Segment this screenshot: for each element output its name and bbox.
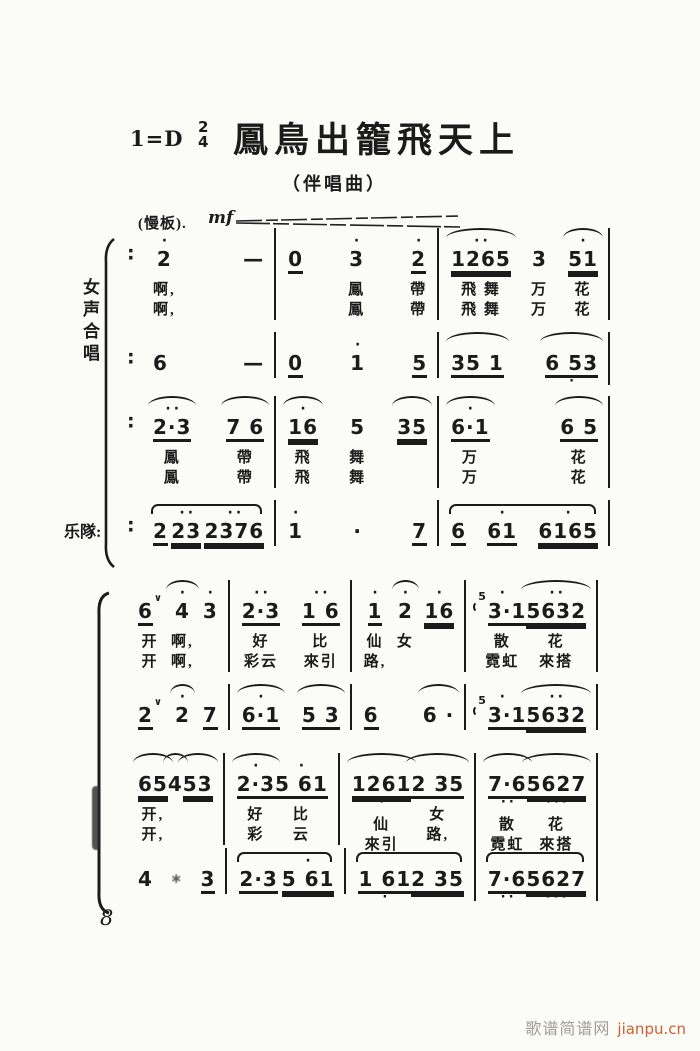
note-number: 2 35 <box>411 867 464 891</box>
note-row: 2·3 <box>237 772 275 796</box>
octave-dots-above <box>315 693 326 703</box>
breath-mark: ∨ <box>154 697 162 708</box>
lyric: 花 <box>575 301 592 320</box>
note-number: 1 <box>350 351 365 375</box>
note-row: 0 <box>288 247 303 271</box>
note-row: 2·3 <box>239 867 277 891</box>
note-row: 53·1 <box>478 703 526 727</box>
note-row: 0 <box>288 351 303 375</box>
note-unit: 4 <box>168 753 183 845</box>
octave-dots-above: · <box>159 237 170 247</box>
octave-dots-above <box>203 857 214 867</box>
music-line: 65开,开, 4 53 ·2·3好彩·5 61比云 1261·仙來引 2 35女… <box>126 753 598 855</box>
note-row: 7 <box>203 703 218 727</box>
octave-dots-below: · <box>566 378 577 385</box>
octave-dots-above: · <box>177 693 188 703</box>
measure: 6·61·6165 <box>439 500 610 546</box>
music-line: 2∨·2 7·6·1 5 3 6 6 ··53·1··5632 <box>126 684 598 730</box>
lyric <box>251 281 257 300</box>
note-number: 2·3 <box>242 599 280 623</box>
note-number: 7 <box>412 519 427 543</box>
note-number: 7 <box>203 703 218 727</box>
note-unit: ·16飛飛 <box>288 396 318 488</box>
note-unit: ··2·3好彩云 <box>242 580 280 672</box>
note-number: 5 <box>412 351 427 375</box>
note-row: 6 <box>364 703 379 727</box>
octave-dots-above: · <box>497 693 508 703</box>
note-unit: ·4啊,啊, <box>171 580 194 672</box>
octave-dots-above: ·· <box>162 405 182 415</box>
note-number: 2 35 <box>411 772 464 796</box>
page-number: 8 <box>100 906 113 930</box>
lyric: 路, <box>426 826 449 845</box>
measure: ··2·3鳳鳳 7 6帶帶 <box>141 396 276 488</box>
lyric: 开, <box>142 806 165 825</box>
lyric: 帶 <box>410 301 427 320</box>
lyric: 万 <box>462 469 479 488</box>
octave-dots-above <box>290 237 301 247</box>
lyric <box>172 806 178 825</box>
note-unit: 6 5花花 <box>560 396 598 488</box>
octave-dots-above <box>205 693 216 703</box>
measure: 65开,开, 4 53 <box>126 753 225 845</box>
note-unit: 3万万 <box>531 228 548 320</box>
note-row: 5632 <box>526 599 586 623</box>
lyric: 鳳 <box>348 301 365 320</box>
time-signature-bottom: 4 <box>198 135 208 150</box>
note-row: 1261 <box>352 772 412 796</box>
note-row: 35 1 <box>451 351 504 375</box>
note-row: 3 <box>349 247 364 271</box>
phrase-arc <box>486 852 584 862</box>
note-number: 3·1 <box>488 703 526 727</box>
note-number: 6 <box>138 599 153 623</box>
octave-dots-above: · <box>577 237 588 247</box>
note-unit: ··1 6比來引 <box>302 580 340 672</box>
repeat-dots: ∶ <box>128 500 141 538</box>
note-row: 2376 <box>204 519 264 543</box>
lyric: 云 <box>293 826 310 845</box>
note-number: 6 <box>451 519 466 543</box>
note-row: 2∨ <box>138 703 162 727</box>
octave-dots-above <box>170 762 181 772</box>
note-row: 65 <box>138 772 168 796</box>
lyric <box>195 806 201 825</box>
octave-dots-below: · <box>376 799 387 806</box>
music-line: 6∨开开·4啊,啊,·3 ··2·3好彩云··1 6比來引·1仙路,·2女 ·1… <box>126 580 598 672</box>
lyric: 來引 <box>304 653 338 672</box>
note-unit: ·51花花 <box>568 228 598 320</box>
note-number: 2·3 <box>237 772 275 796</box>
note-unit: 5 3 <box>302 684 340 727</box>
measure: ·6·1万万 6 5花花 <box>439 396 610 488</box>
lyric: 散 <box>494 633 511 652</box>
note-unit: 5 <box>412 332 427 375</box>
music-line: ∶ 6 — 0·1 5 35 1 6 53· <box>128 332 610 385</box>
note-unit: ·3鳳鳳 <box>348 228 365 320</box>
lyric <box>409 469 415 488</box>
note-row: 5 <box>412 351 427 375</box>
note-number: 1261 <box>352 772 412 796</box>
octave-dots-above: · <box>465 405 476 415</box>
note-unit: — <box>243 228 264 320</box>
lyric <box>207 653 213 672</box>
note-unit: ∗ <box>170 848 183 891</box>
chorus-label: 女声合唱 <box>77 278 102 366</box>
note-unit: 7 <box>203 684 218 727</box>
note-unit: ·2女 <box>397 580 414 672</box>
octave-dots-above: · <box>290 509 301 519</box>
lyric <box>409 449 415 468</box>
note-number: 1 61 <box>358 867 411 891</box>
music-line: ∶··2·3鳳鳳 7 6帶帶·16飛飛 5舞舞 35 ·6·1万万 6 5花花 <box>128 396 610 488</box>
lyric: 好 <box>252 633 269 652</box>
lyric: 舞 <box>349 469 366 488</box>
note-row: 2 35 <box>411 772 464 796</box>
note-number: 1 6 <box>302 599 340 623</box>
note-row: 53 <box>183 772 213 796</box>
note-number: 53 <box>183 772 213 796</box>
note-row: 2 35 <box>411 867 464 891</box>
subtitle: （伴唱曲） <box>282 170 387 196</box>
note-unit: 0 <box>288 228 303 320</box>
time-signature: 2 4 <box>198 120 208 150</box>
note-unit: 6 <box>364 684 379 727</box>
octave-dots-above: ·· <box>546 693 566 703</box>
note-row: 5627 <box>526 867 586 891</box>
lyric: 开 <box>142 653 159 672</box>
note-number: 2 <box>153 519 168 543</box>
octave-dots-above <box>414 341 425 351</box>
note-row: 51 <box>568 247 598 271</box>
note-unit: ··5632花來搭 <box>526 580 586 672</box>
octave-dots-above: ·· <box>311 589 331 599</box>
grace-note: 5 <box>478 694 486 707</box>
note-row: 3 <box>203 599 218 623</box>
octave-dots-above <box>574 405 585 415</box>
measure: 6 — <box>141 332 276 378</box>
lyric: 花 <box>571 469 588 488</box>
octave-dots-above <box>433 693 444 703</box>
note-unit: ·2帶帶 <box>410 228 427 320</box>
note-row: 53·1 <box>478 599 526 623</box>
grace-note: 5 <box>478 590 486 603</box>
note-row: 6 · <box>423 703 454 727</box>
lyric: 飛 <box>295 469 312 488</box>
octave-dots-above <box>240 405 251 415</box>
note-unit: ·2·3好彩 <box>237 753 275 845</box>
note-number: 6 53 <box>545 351 598 375</box>
note-number: 35 <box>397 415 427 439</box>
note-row: 1 61 <box>358 867 411 891</box>
note-unit: ··2·3鳳鳳 <box>153 396 191 488</box>
breath-mark: ∨ <box>154 593 162 604</box>
octave-dots-above <box>432 762 443 772</box>
note-unit: 35 1 <box>451 332 504 375</box>
octave-dots-above <box>566 341 577 351</box>
note-number: 2 <box>138 703 153 727</box>
note-row: 1 <box>288 519 303 543</box>
measure: 2·3·5 61 <box>227 848 346 894</box>
note-row: 6165 <box>538 519 598 543</box>
lyric: 飛 舞 <box>461 281 501 300</box>
measure: 2··23··2376 <box>141 500 276 546</box>
lyric <box>403 653 409 672</box>
lyric <box>207 633 213 652</box>
note-row: 2 <box>157 247 172 271</box>
note-number: 3 <box>349 247 364 271</box>
note-row: 1 <box>368 599 383 623</box>
note-number: — <box>243 247 264 271</box>
lyric: 女 <box>397 633 414 652</box>
octave-dots-below: ·· <box>498 894 517 901</box>
lyric <box>436 633 442 652</box>
octave-dots-above: ·· <box>471 237 491 247</box>
octave-dots-above: · <box>400 589 411 599</box>
octave-dots-above: · <box>205 589 216 599</box>
system2-brace <box>94 590 112 916</box>
note-row: 23 <box>171 519 201 543</box>
repeat-dots: ∶ <box>128 332 141 370</box>
note-row: 6∨ <box>138 599 162 623</box>
measure: 7·6·· 5627··· <box>476 848 598 901</box>
note-number: 2 <box>411 247 426 271</box>
dynamic-marking: mf <box>208 208 233 228</box>
note-number: 7·6 <box>488 867 526 891</box>
note-number: 5627 <box>526 867 586 891</box>
lyric: 万 <box>531 281 548 300</box>
note-number: 6 <box>364 703 379 727</box>
lyric: 霓虹 <box>485 653 519 672</box>
note-row: 2 <box>175 703 190 727</box>
key-signature: 1=D <box>130 126 183 151</box>
measure: ·6·1 5 3 <box>230 684 352 730</box>
note-row: 5632 <box>526 703 586 727</box>
octave-dots-above <box>192 762 203 772</box>
octave-dots-above <box>366 693 377 703</box>
measure: ·1 · 7 <box>276 500 439 546</box>
note-row: 1265 <box>451 247 511 271</box>
note-number: 5627 <box>527 772 587 796</box>
note-number: · <box>353 519 362 543</box>
lyric <box>251 301 257 320</box>
note-row: 6·1 <box>242 703 280 727</box>
note-row: — <box>243 351 264 375</box>
measure: 6 6 · <box>352 684 467 730</box>
note-unit: 2∨ <box>138 684 162 727</box>
note-number: 2 <box>175 703 190 727</box>
octave-dots-below: ·· <box>498 799 517 806</box>
octave-dots-above <box>472 341 483 351</box>
note-unit: ·1仙路, <box>364 580 387 672</box>
note-row: 4 <box>168 772 183 796</box>
octave-dots-above: · <box>369 589 380 599</box>
lyric: 鳳 <box>348 281 365 300</box>
lyric: 帶 <box>237 449 254 468</box>
lyric <box>195 826 201 845</box>
note-unit: ·2 <box>175 684 190 727</box>
note-row: 2·3 <box>153 415 191 439</box>
lyric: 啊, <box>171 653 194 672</box>
note-unit: 5627···花來搭 <box>527 753 587 855</box>
lyric: 好 <box>247 806 264 825</box>
octave-dots-above <box>290 341 301 351</box>
note-number: 16 <box>288 415 318 439</box>
note-unit: ·5 61比云 <box>275 753 328 845</box>
measure: ·2啊,啊, — <box>141 228 276 320</box>
note-number: 5632 <box>526 599 586 623</box>
phrase-arc <box>237 852 332 862</box>
note-unit: 3 <box>201 848 216 891</box>
music-system: 6∨开开·4啊,啊,·3 ··2·3好彩云··1 6比來引·1仙路,·2女 ·1… <box>126 580 598 916</box>
octave-dots-above <box>502 762 513 772</box>
note-number: 2·3 <box>153 415 191 439</box>
lyric <box>172 826 178 845</box>
octave-dots-above <box>551 762 562 772</box>
octave-dots-above: · <box>177 589 188 599</box>
note-row: 3 <box>201 867 216 891</box>
note-row: 35 <box>397 415 427 439</box>
page-title: 鳳鳥出籠飛天上 <box>233 112 520 163</box>
octave-dots-above: · <box>255 693 266 703</box>
octave-dots-above <box>147 762 158 772</box>
watermark-site-name: 歌谱简谱网 <box>525 1021 610 1038</box>
note-unit: ·3 <box>203 580 218 672</box>
note-number: 2·3 <box>239 867 277 891</box>
octave-dots-above: · <box>296 762 307 772</box>
note-number: 7·6 <box>488 772 526 796</box>
note-unit: 5舞舞 <box>349 396 366 488</box>
note-unit: 7·6··散霓虹 <box>488 753 526 855</box>
lyric: 彩云 <box>244 653 278 672</box>
note-row: 7 6 <box>226 415 264 439</box>
note-unit: ·6·1 <box>242 684 280 727</box>
lyric: 花 <box>575 281 592 300</box>
note-row: 7·6 <box>488 772 526 796</box>
watermark: 歌谱简谱网jianpu.cn <box>525 1015 686 1039</box>
note-row: 2 <box>153 519 168 543</box>
measure: ··2·3好彩云··1 6比來引 <box>230 580 352 672</box>
octave-dots-above <box>140 857 151 867</box>
measure: 35 1 6 53· <box>439 332 610 385</box>
octave-dots-above <box>248 341 259 351</box>
octave-dots-above <box>352 405 363 415</box>
note-number: 6·1 <box>242 703 280 727</box>
octave-dots-above <box>414 509 425 519</box>
repeat-dots: ∶ <box>128 396 141 434</box>
note-unit: ··1265飛 舞飛 舞 <box>451 228 511 320</box>
note-row: 6 53 <box>545 351 598 375</box>
octave-dots-above <box>376 762 387 772</box>
octave-dots-above: · <box>434 589 445 599</box>
octave-dots-above: · <box>297 405 308 415</box>
watermark-link[interactable]: jianpu.cn <box>617 1020 686 1038</box>
lyric: 开 <box>142 633 159 652</box>
measure: ·16飛飛 5舞舞 35 <box>276 396 439 488</box>
note-row: 16 <box>424 599 454 623</box>
note-unit: ··5632 <box>526 684 586 727</box>
lyric: 女 <box>429 806 446 825</box>
lyric: 帶 <box>410 281 427 300</box>
lyric: 鳳 <box>164 469 181 488</box>
score-page: 1=D 2 4 鳳鳥出籠飛天上 （伴唱曲） (慢板). mf 女声合唱 乐隊: … <box>0 0 700 1051</box>
note-unit: 53 <box>183 753 213 845</box>
octave-dots-above <box>171 857 182 867</box>
lyric: 飛 舞 <box>461 301 501 320</box>
note-number: — <box>243 351 264 375</box>
note-row: 2·3 <box>242 599 280 623</box>
note-unit: ·6·1万万 <box>451 396 489 488</box>
note-row: 6 <box>153 351 168 375</box>
lyric: 路, <box>364 653 387 672</box>
lyric: 啊, <box>153 301 176 320</box>
note-number: 5 61 <box>275 772 328 796</box>
note-number: 2376 <box>204 519 264 543</box>
ink-smudge <box>92 786 100 850</box>
note-number: 6·1 <box>451 415 489 439</box>
note-unit: 7 <box>412 500 427 543</box>
lyric: 比 <box>312 633 329 652</box>
octave-dots-above: ·· <box>251 589 271 599</box>
note-number: 1265 <box>451 247 511 271</box>
note-unit: — <box>243 332 264 375</box>
note-number: 5 <box>350 415 365 439</box>
measure: 6∨开开·4啊,啊,·3 <box>126 580 230 672</box>
note-number: 6 5 <box>560 415 598 439</box>
lyric: 舞 <box>349 449 366 468</box>
note-row: 6 <box>451 519 466 543</box>
octave-dots-above: · <box>351 237 362 247</box>
note-row: 7 <box>412 519 427 543</box>
note-unit: 6 · <box>423 684 454 727</box>
measure: 2∨·2 7 <box>126 684 230 730</box>
note-row: ∗ <box>170 867 183 891</box>
note-row: 4 <box>175 599 190 623</box>
note-row: 5 61 <box>275 772 328 796</box>
note-row: 2 <box>411 247 426 271</box>
lyric: 散 <box>499 816 516 835</box>
note-number: 1 <box>368 599 383 623</box>
note-number: 5632 <box>526 703 586 727</box>
note-unit: 1261·仙來引 <box>352 753 412 855</box>
note-number: 0 <box>288 247 303 271</box>
phrase-arc <box>449 504 596 514</box>
note-number: 4 <box>138 867 153 891</box>
measure: ·2·3好彩·5 61比云 <box>225 753 340 845</box>
note-number: 6 <box>153 351 168 375</box>
note-unit: ·1 <box>288 500 303 543</box>
note-unit: 65开,开, <box>138 753 168 845</box>
note-number: 7 6 <box>226 415 264 439</box>
note-unit: ·53·1 <box>478 684 526 727</box>
note-number: 5 61 <box>282 867 335 891</box>
phrase-arc <box>151 504 262 514</box>
note-unit: 0 <box>288 332 303 375</box>
note-number: 51 <box>568 247 598 271</box>
system1-brace <box>101 236 117 570</box>
measure: ·1仙路,·2女 ·16 <box>352 580 467 672</box>
note-number: 6165 <box>538 519 598 543</box>
note-number: 23 <box>171 519 201 543</box>
octave-dots-above <box>155 341 166 351</box>
lyric <box>293 281 299 300</box>
music-line: ∶ 2··23··2376·1 · 7 6·61·6165 <box>128 500 610 546</box>
lyric: 帶 <box>237 469 254 488</box>
note-number: ∗ <box>170 867 183 891</box>
octave-dots-above <box>352 509 363 519</box>
note-number: 1 <box>288 519 303 543</box>
octave-dots-below: ··· <box>543 894 570 901</box>
